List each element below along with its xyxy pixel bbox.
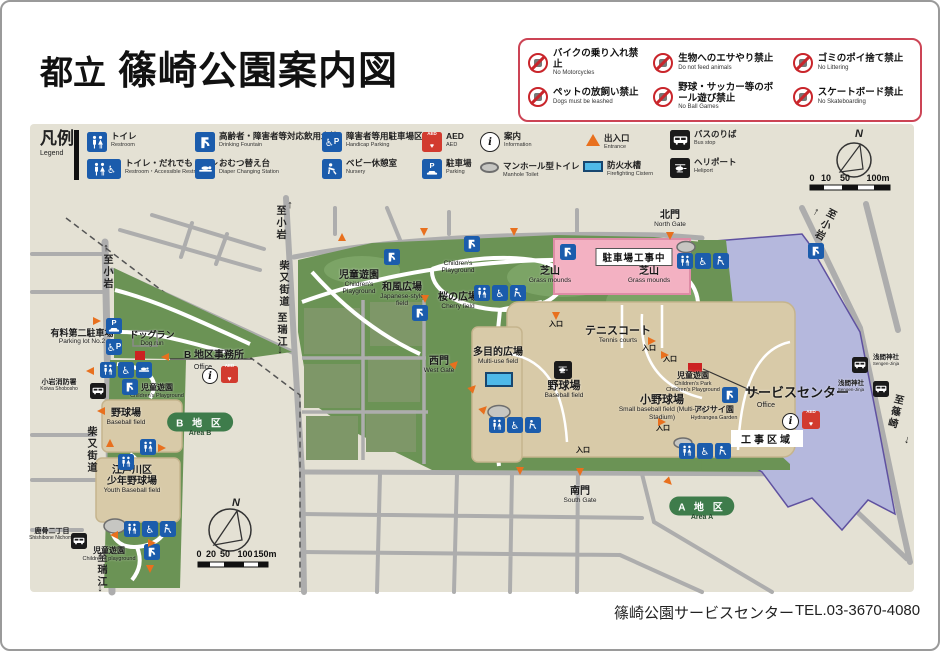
scale-tick: 50: [840, 173, 850, 183]
information-icon: i: [480, 132, 500, 152]
legend-cistern: 防火水槽Firefighting Cistern: [583, 161, 653, 177]
label-service-center-office: Office: [757, 402, 775, 410]
label-childrens-playground-b-south: 児童遊園Children's playground: [82, 547, 135, 562]
prohibition-rules-panel: バイクの乗り入れ禁止No Motorcycles 生物へのエサやり禁止Do no…: [518, 38, 922, 122]
restroom-cluster: [100, 362, 152, 378]
entrance-triangle: [661, 351, 669, 359]
entrance-triangle: [421, 295, 429, 303]
label-koiwa-fire-station: 小岩消防署Koiwa Shobosho: [40, 379, 78, 392]
restroom-icon: [474, 285, 490, 301]
restroom-icon: [489, 417, 505, 433]
area-b-pill: B 地 区: [167, 413, 233, 432]
restroom-cluster: [474, 285, 526, 301]
label-sengen-jinja-2: 浅間神社Sengen-Jinja: [838, 380, 864, 392]
compass-north-label: N: [232, 497, 240, 509]
entrance-triangle: [97, 407, 105, 415]
label-hydrangea-garden: アジサイ園Hydrangea Garden: [691, 406, 738, 421]
drinking-fountain-icon: [195, 132, 215, 152]
entrance-triangle: [666, 232, 674, 240]
label-parking-lot-2: 有料第二駐車場Parking lot No.2: [50, 328, 113, 345]
aed-icon: AED: [422, 132, 442, 152]
no-feeding-icon: [653, 53, 673, 73]
entrance-triangle: [576, 468, 584, 476]
information-icon: i: [202, 368, 218, 384]
label-construction-zone: 工事区域: [731, 430, 803, 447]
label-cherry-field: 桜の広場Cherry field: [438, 292, 478, 310]
scale-tick: 20: [206, 549, 216, 559]
entrance-triangle: [110, 531, 118, 539]
drinking-fountain-icon: [808, 243, 824, 259]
legend-information: i案内Information: [480, 132, 532, 152]
legend-entrance: 出入口Entrance: [586, 134, 630, 150]
aed-icon: AED: [221, 366, 238, 383]
arrow-down: ↓: [277, 344, 283, 356]
scale-tick: 100: [237, 549, 252, 559]
accessible-icon: [507, 417, 523, 433]
entrance-triangle: [510, 228, 518, 236]
entrance-triangle: [86, 367, 94, 375]
label-childrens-playground-center: Children's Playground: [429, 260, 487, 275]
area-a-label: Area A: [691, 514, 713, 521]
legend-parking: P駐車場Parking: [422, 159, 472, 179]
accessible-icon: [695, 253, 711, 269]
label-childrens-park-east: 児童遊園Children's ParkChildren's Playground: [666, 372, 720, 393]
restroom-cluster: [677, 253, 729, 269]
footer-telephone: TEL.03-3670-4080: [795, 602, 920, 619]
shinozaki-park-guide-map: 都立 篠崎公園案内図 バイクの乗り入れ禁止No Motorcycles 生物への…: [0, 0, 940, 651]
no-skateboarding-icon: [793, 87, 813, 107]
heliport-icon: [670, 158, 690, 178]
prohibition-dogs-leashed: ペットの放飼い禁止Dogs must be leashed: [528, 80, 647, 114]
entrance-triangle: [516, 467, 524, 475]
restroom-icon: [679, 443, 695, 459]
drinking-fountain-icon: [464, 236, 480, 252]
restroom-icon: [87, 132, 107, 152]
bus-stop-icon: [90, 383, 106, 399]
heliport-icon: [554, 361, 572, 379]
scale-tick: 150m: [253, 549, 276, 559]
label-grass-mounds-west: 芝山Grass mounds: [529, 266, 571, 284]
area-b-label: Area B: [189, 430, 212, 437]
entrance-triangle: [648, 337, 656, 345]
nursery-icon: [510, 285, 526, 301]
label-b-baseball-field: 野球場Baseball field: [107, 408, 146, 426]
restroom-icon: [140, 439, 156, 455]
accessible-restroom-icon: [87, 159, 121, 179]
scale-tick: 100m: [866, 173, 889, 183]
arrow-up: ↑: [103, 242, 109, 254]
entrance-triangle: [338, 233, 346, 241]
drinking-fountain-icon: [412, 305, 428, 321]
label-dog-run: ドッグランDog run: [129, 330, 174, 347]
footer-service-center-name: 篠崎公園サービスセンター: [614, 602, 794, 623]
label-japanese-style-field: 和風広場Japanese-style field: [377, 282, 427, 308]
drinking-fountain-icon: [560, 244, 576, 260]
no-loose-dogs-icon: [528, 87, 548, 107]
arrow-up: ↑: [287, 199, 293, 211]
compass-north-label: N: [855, 128, 863, 140]
bus-stop-icon: [71, 533, 87, 549]
title-prefix: 都立: [40, 46, 106, 94]
diaper-changing-icon: [195, 159, 215, 179]
label-childrens-playground-b-north: 児童遊園Children's Playground: [130, 384, 184, 399]
legend-nursery: ベビー休憩室Nursery: [322, 159, 397, 179]
label-tennis-courts: テニスコートTennis courts: [585, 325, 651, 345]
entrance-triangle: [158, 444, 166, 452]
entrance-triangle: [552, 312, 560, 320]
scale-tick: 10: [821, 173, 831, 183]
office-pointer-triangle: [161, 353, 169, 361]
restroom-icon: [677, 253, 693, 269]
label-north-gate: 北門North Gate: [654, 210, 686, 228]
wheelchair-icon: [107, 160, 116, 178]
information-icon: i: [782, 413, 799, 430]
prohibition-no-motorcycles: バイクの乗り入れ禁止No Motorcycles: [528, 46, 647, 80]
no-ball-games-icon: [653, 87, 673, 107]
legend-manhole-toilet: マンホール型トイレManhole Toilet: [480, 162, 580, 178]
entrance-label: 入口: [549, 319, 563, 329]
legend-bus-stop: バスのりばBus stop: [670, 130, 737, 150]
label-b-office: B 地区事務所: [184, 350, 244, 361]
legend-divider: [74, 130, 79, 180]
legend-diaper-station: おむつ替え台Diaper Changing Station: [195, 159, 279, 179]
prohibition-no-skateboarding: スケートボード禁止No Skateboarding: [793, 80, 912, 114]
diaper-changing-icon: [136, 362, 152, 378]
prohibition-no-feeding: 生物へのエサやり禁止Do not feed animals: [653, 46, 787, 80]
nursery-icon: [160, 521, 176, 537]
road-to-mizue: 至瑞江: [275, 312, 285, 348]
entrance-triangle: [146, 565, 154, 573]
bus-stop-icon: [852, 357, 868, 373]
label-parking-construction: 駐車場工事中: [595, 248, 672, 266]
scale-tick: 0: [809, 173, 814, 183]
drinking-fountain-icon: [384, 249, 400, 265]
entrance-label: 入口: [576, 445, 590, 455]
road-to-koiwa: 至小岩: [274, 205, 284, 241]
legend-aed: AEDAEDAED: [422, 132, 464, 152]
nursery-icon: [715, 443, 731, 459]
restroom-cluster: [124, 521, 176, 537]
nursery-icon: [713, 253, 729, 269]
legend-drinking-fountain: 高齢者・障害者等対応飲用水栓Drinking Fountain: [195, 132, 338, 152]
nursery-icon: [322, 159, 342, 179]
entrance-triangle-icon: [586, 134, 600, 146]
entrance-triangle: [148, 539, 156, 547]
handicap-parking-icon: P: [322, 132, 342, 152]
wheelchair-icon: [325, 133, 334, 151]
label-sengen-jinja-1: 浅間神社Sengen-Jinja: [873, 354, 899, 366]
legend-handicap-parking: P障害者等用駐車場区画Handicap Parking: [322, 132, 431, 152]
prohibition-no-littering: ゴミのポイ捨て禁止No Littering: [793, 46, 912, 80]
restroom-icon: [124, 521, 140, 537]
legend-restroom: トイレRestroom: [87, 132, 137, 152]
nursery-icon: [525, 417, 541, 433]
accessible-icon: [697, 443, 713, 459]
label-baseball-field: 野球場Baseball field: [545, 380, 584, 400]
restroom-icon: [118, 454, 134, 470]
firefighting-cistern-icon: [583, 161, 603, 172]
scale-tick: 0: [196, 549, 201, 559]
label-grass-mounds-east: 芝山Grass mounds: [628, 266, 670, 284]
restroom-icon: [100, 362, 116, 378]
accessible-icon: [492, 285, 508, 301]
parking-icon: P: [106, 318, 122, 334]
bus-stop-icon: [873, 381, 889, 397]
restroom-cluster: [679, 443, 731, 459]
entrance-triangle: [106, 439, 114, 447]
drinking-fountain-icon: [722, 387, 738, 403]
label-shishibone-nichome: 鹿骨二丁目Shishibone Nichome: [29, 528, 75, 541]
legend-heliport: ヘリポートHeliport: [670, 158, 737, 178]
heart-icon: [430, 136, 434, 152]
restroom-cluster: [489, 417, 541, 433]
manhole-toilet-icon: [480, 162, 499, 173]
no-littering-icon: [793, 53, 813, 73]
prohibition-no-ball-games: 野球・サッカー等のボール遊び禁止No Ball Games: [653, 80, 787, 114]
entrance-triangle: [658, 418, 666, 426]
page-title: 都立 篠崎公園案内図: [40, 40, 398, 96]
label-multiuse-field: 多目的広場Multi-use field: [473, 347, 523, 365]
aed-icon: AED: [802, 411, 820, 429]
label-south-gate: 南門South Gate: [564, 486, 597, 504]
road-shibamata-kaido: 柴又街道: [277, 260, 287, 308]
road-to-koiwa: 至小岩: [101, 254, 111, 290]
accessible-icon: [142, 521, 158, 537]
parking-icon: P: [422, 159, 442, 179]
handicap-parking-icon: P: [106, 339, 122, 355]
no-motorcycles-icon: [528, 53, 548, 73]
area-a-pill: A 地 区: [669, 497, 734, 516]
label-service-center: サービスセンター: [745, 386, 849, 401]
legend-title: 凡例 Legend: [40, 130, 74, 157]
accessible-icon: [118, 362, 134, 378]
arrow-down: ↓: [97, 582, 103, 594]
drinking-fountain-icon: [122, 379, 138, 395]
title-main: 篠崎公園案内図: [118, 40, 398, 96]
entrance-triangle: [93, 317, 101, 325]
entrance-triangle: [420, 228, 428, 236]
scale-tick: 50: [220, 549, 230, 559]
bus-stop-icon: [670, 130, 690, 150]
